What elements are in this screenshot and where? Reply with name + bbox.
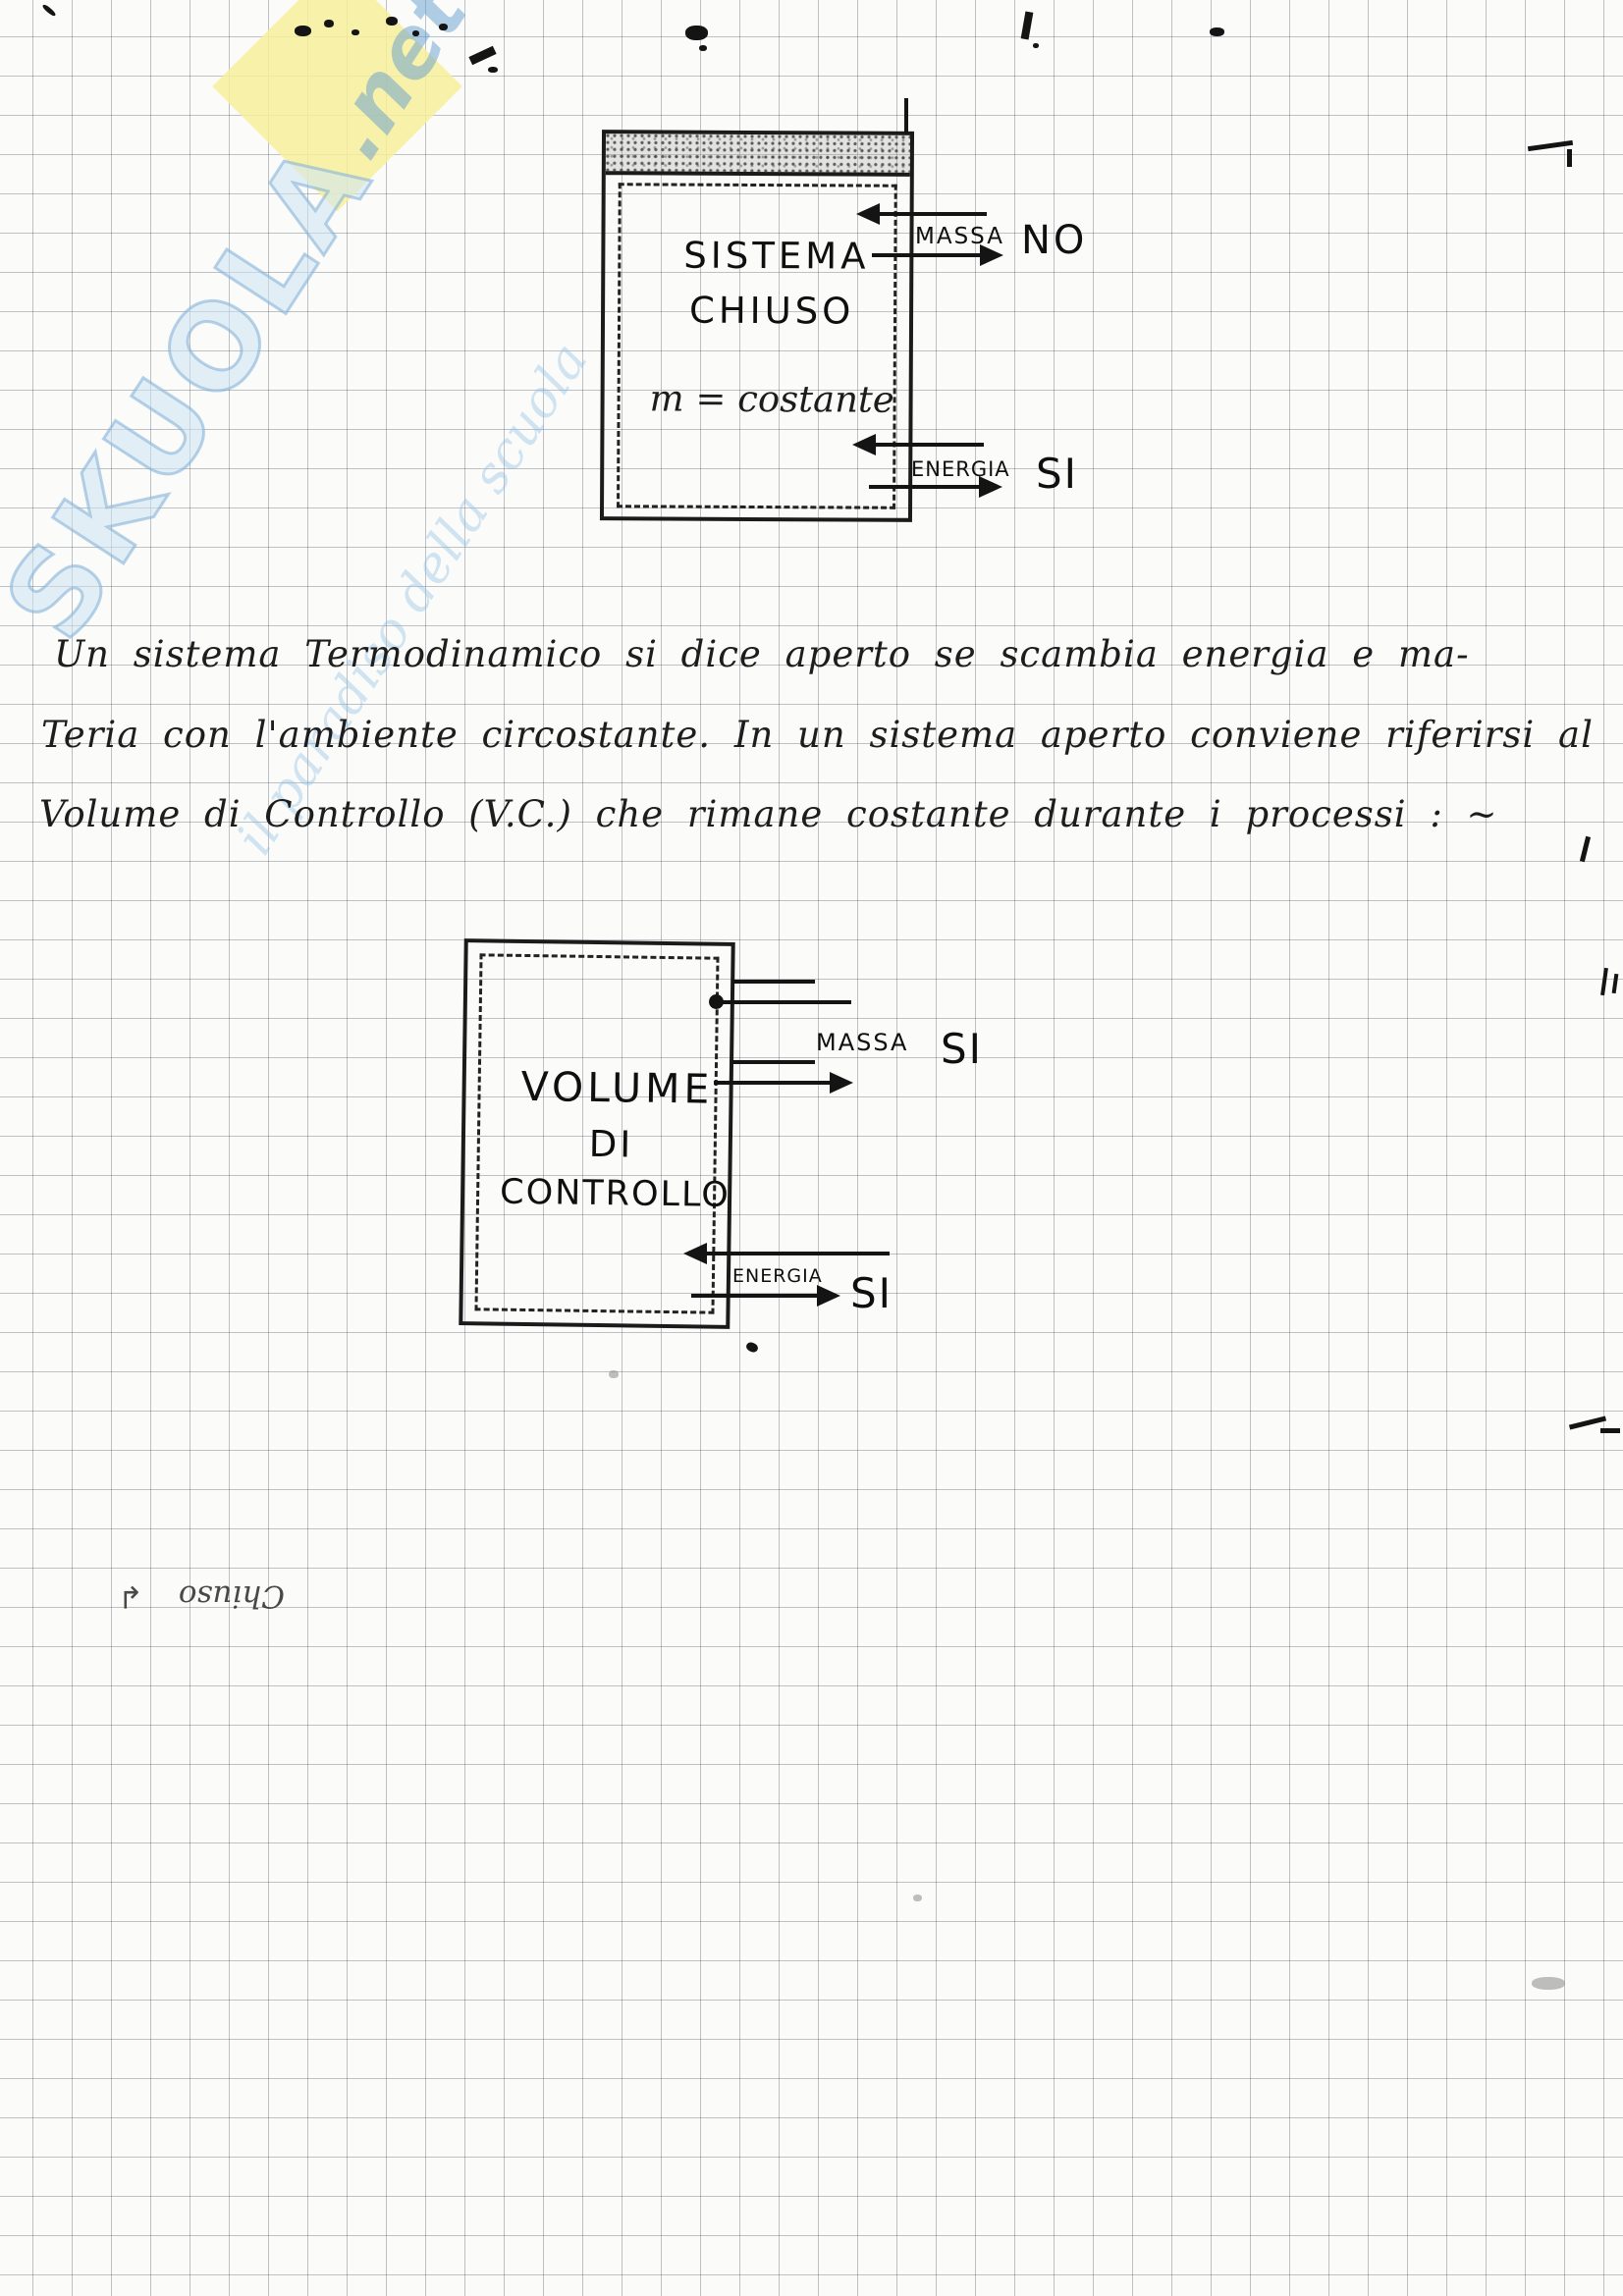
closed-system-title-line2: CHIUSO xyxy=(689,290,854,333)
paragraph-line-3: Volume di Controllo (V.C.) che rimane co… xyxy=(39,793,1498,835)
mass-in-line xyxy=(877,212,987,216)
closed-system-mass-answer: NO xyxy=(1021,218,1087,263)
skuola-watermark: SKUOLA .net xyxy=(10,17,470,602)
closed-system-dashed-boundary xyxy=(617,183,897,508)
control-volume-title-line3: CONTROLLO xyxy=(500,1173,730,1215)
bleed-through-text: Chiuso ↲ xyxy=(118,1578,285,1614)
scanned-notes-page: SKUOLA .net il paradiso della scuola SIS… xyxy=(0,0,1623,2296)
mass-flow-line-3 xyxy=(732,1060,815,1064)
closed-system-box: SISTEMA CHIUSO m = costante xyxy=(600,130,914,522)
energy-out-line xyxy=(869,485,985,489)
control-volume-energy-label: ENERGIA xyxy=(732,1265,823,1287)
paragraph-line-2: Teria con l'ambiente circostante. In un … xyxy=(41,714,1594,756)
control-volume-mass-answer: SI xyxy=(941,1025,983,1073)
control-volume-energy-answer: SI xyxy=(850,1269,893,1317)
mass-out-line xyxy=(872,253,986,257)
closed-system-equation: m = costante xyxy=(649,377,893,420)
energy-out-arrowhead-cv-icon xyxy=(817,1285,840,1307)
mass-out-arrowhead-icon xyxy=(980,244,1003,266)
bleed-through-arrow-icon: ↲ xyxy=(118,1578,143,1614)
energy-in-arrowhead-cv-icon xyxy=(683,1243,707,1264)
control-volume-title-line2: DI xyxy=(589,1123,634,1166)
hatched-wall-band xyxy=(606,133,910,177)
mass-out-line-cv xyxy=(714,1081,838,1085)
control-volume-box: VOLUME DI CONTROLLO xyxy=(459,938,734,1329)
closed-system-title-line1: SISTEMA xyxy=(683,235,869,278)
closed-system-energy-answer: SI xyxy=(1036,450,1078,498)
energy-in-line-cv xyxy=(703,1252,890,1255)
watermark-tagline: il paradiso della scuola xyxy=(222,328,603,871)
mass-flow-line-2 xyxy=(718,1000,851,1004)
mass-out-arrowhead-cv-icon xyxy=(830,1072,853,1094)
control-volume-mass-label: MASSA xyxy=(816,1029,908,1056)
mass-flow-line-1 xyxy=(732,980,815,984)
energy-in-line xyxy=(872,443,984,447)
energy-out-arrowhead-icon xyxy=(979,476,1002,498)
mass-in-arrowhead-icon xyxy=(856,203,880,225)
bleed-through-word: Chiuso xyxy=(179,1578,285,1614)
energy-out-line-cv xyxy=(691,1294,825,1298)
energy-in-arrowhead-icon xyxy=(852,434,876,455)
control-volume-title-line1: VOLUME xyxy=(520,1063,713,1113)
paragraph-line-1: Un sistema Termodinamico si dice aperto … xyxy=(54,633,1470,675)
watermark-brand: SKUOLA xyxy=(0,117,399,663)
